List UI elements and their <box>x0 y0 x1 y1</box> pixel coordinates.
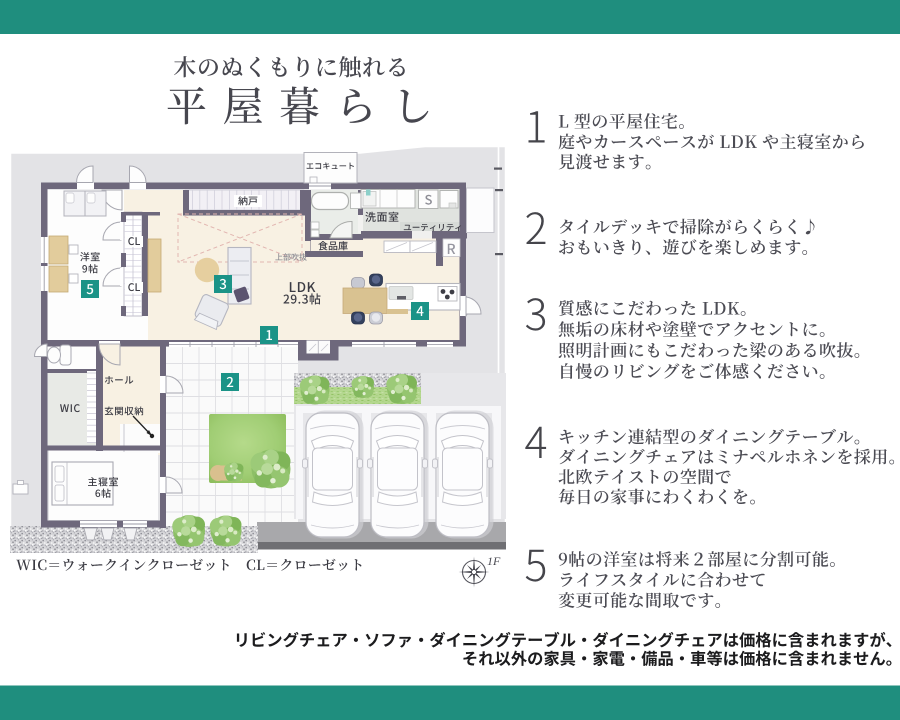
svg-text:1F: 1F <box>487 554 501 568</box>
